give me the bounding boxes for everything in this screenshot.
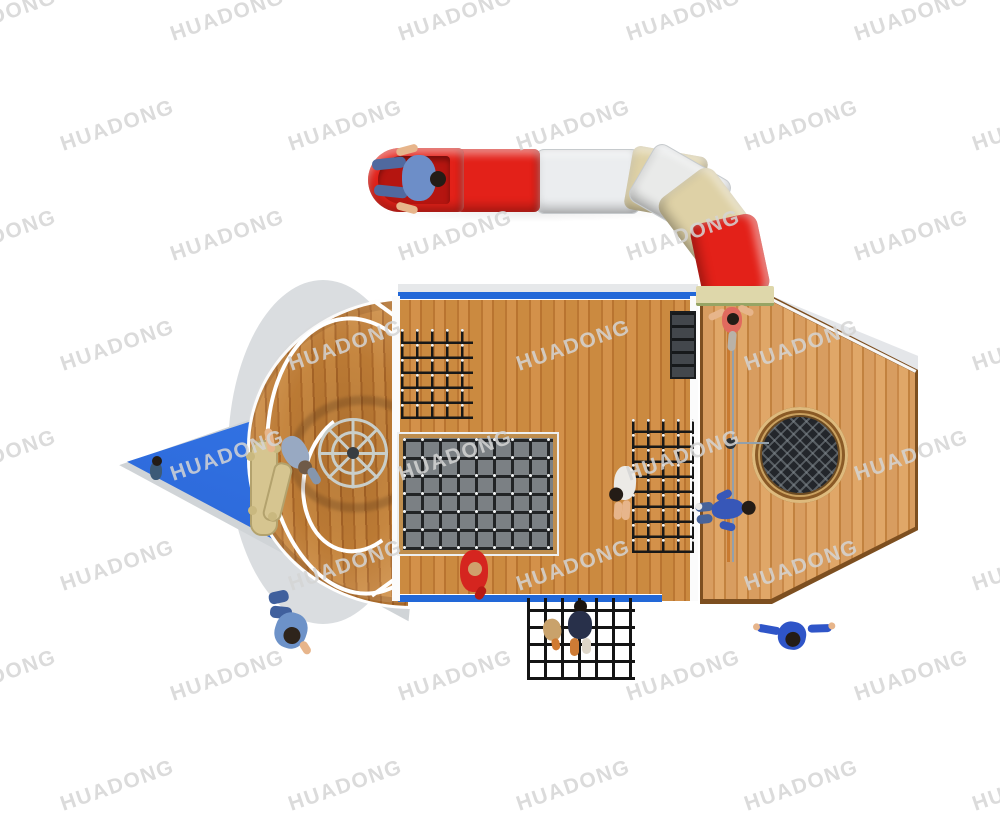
watermark-text: HUADONG — [395, 0, 515, 47]
child-on-slide-exit — [372, 148, 450, 212]
watermark-text: HUADONG — [285, 755, 405, 816]
dark-climb-inset — [670, 311, 696, 379]
watermark-text: HUADONG — [969, 315, 1000, 376]
watermark-text: HUADONG — [741, 755, 861, 816]
watermark-text: HUADONG — [167, 205, 287, 266]
watermark-text: HUADONG — [0, 0, 60, 47]
watermark-text: HUADONG — [623, 645, 743, 706]
child-mid-deck-white — [607, 465, 641, 529]
watermark-text: HUADONG — [167, 0, 287, 47]
child-lying-right — [752, 606, 835, 666]
watermark-text: HUADONG — [513, 95, 633, 156]
flat-rope-net — [401, 329, 473, 419]
crow-nest-basket — [752, 407, 848, 503]
watermark-text: HUADONG — [513, 755, 633, 816]
watermark-text: HUADONG — [57, 755, 177, 816]
vertical-rope-net — [632, 419, 694, 553]
watermark-text: HUADONG — [623, 0, 743, 47]
watermark-text: HUADONG — [851, 0, 971, 47]
basket-net — [760, 415, 840, 495]
child-stern-blue — [694, 491, 761, 533]
watermark-text: HUADONG — [969, 95, 1000, 156]
watermark-text: HUADONG — [395, 645, 515, 706]
watermark-text: HUADONG — [57, 535, 177, 596]
watermark-text: HUADONG — [0, 645, 60, 706]
watermark-text: HUADONG — [969, 535, 1000, 596]
watermark-text: HUADONG — [851, 205, 971, 266]
watermark-text: HUADONG — [851, 645, 971, 706]
mid-deck-trim-top — [398, 292, 696, 300]
tube-segment-red — [456, 149, 540, 212]
watermark-text: HUADONG — [969, 755, 1000, 816]
wheel-hub — [347, 447, 359, 459]
product-render: HUADONGHUADONGHUADONGHUADONGHUADONGHUADO… — [0, 0, 1000, 833]
child-under-bow-net — [148, 456, 164, 486]
watermark-text: HUADONG — [57, 95, 177, 156]
child-mid-deck-red — [460, 546, 494, 600]
watermark-text: HUADONG — [57, 315, 177, 376]
net-pit — [399, 434, 557, 554]
watermark-text: HUADONG — [0, 425, 60, 486]
watermark-text: HUADONG — [0, 205, 60, 266]
watermark-text: HUADONG — [741, 95, 861, 156]
child-stern-top — [708, 299, 754, 353]
